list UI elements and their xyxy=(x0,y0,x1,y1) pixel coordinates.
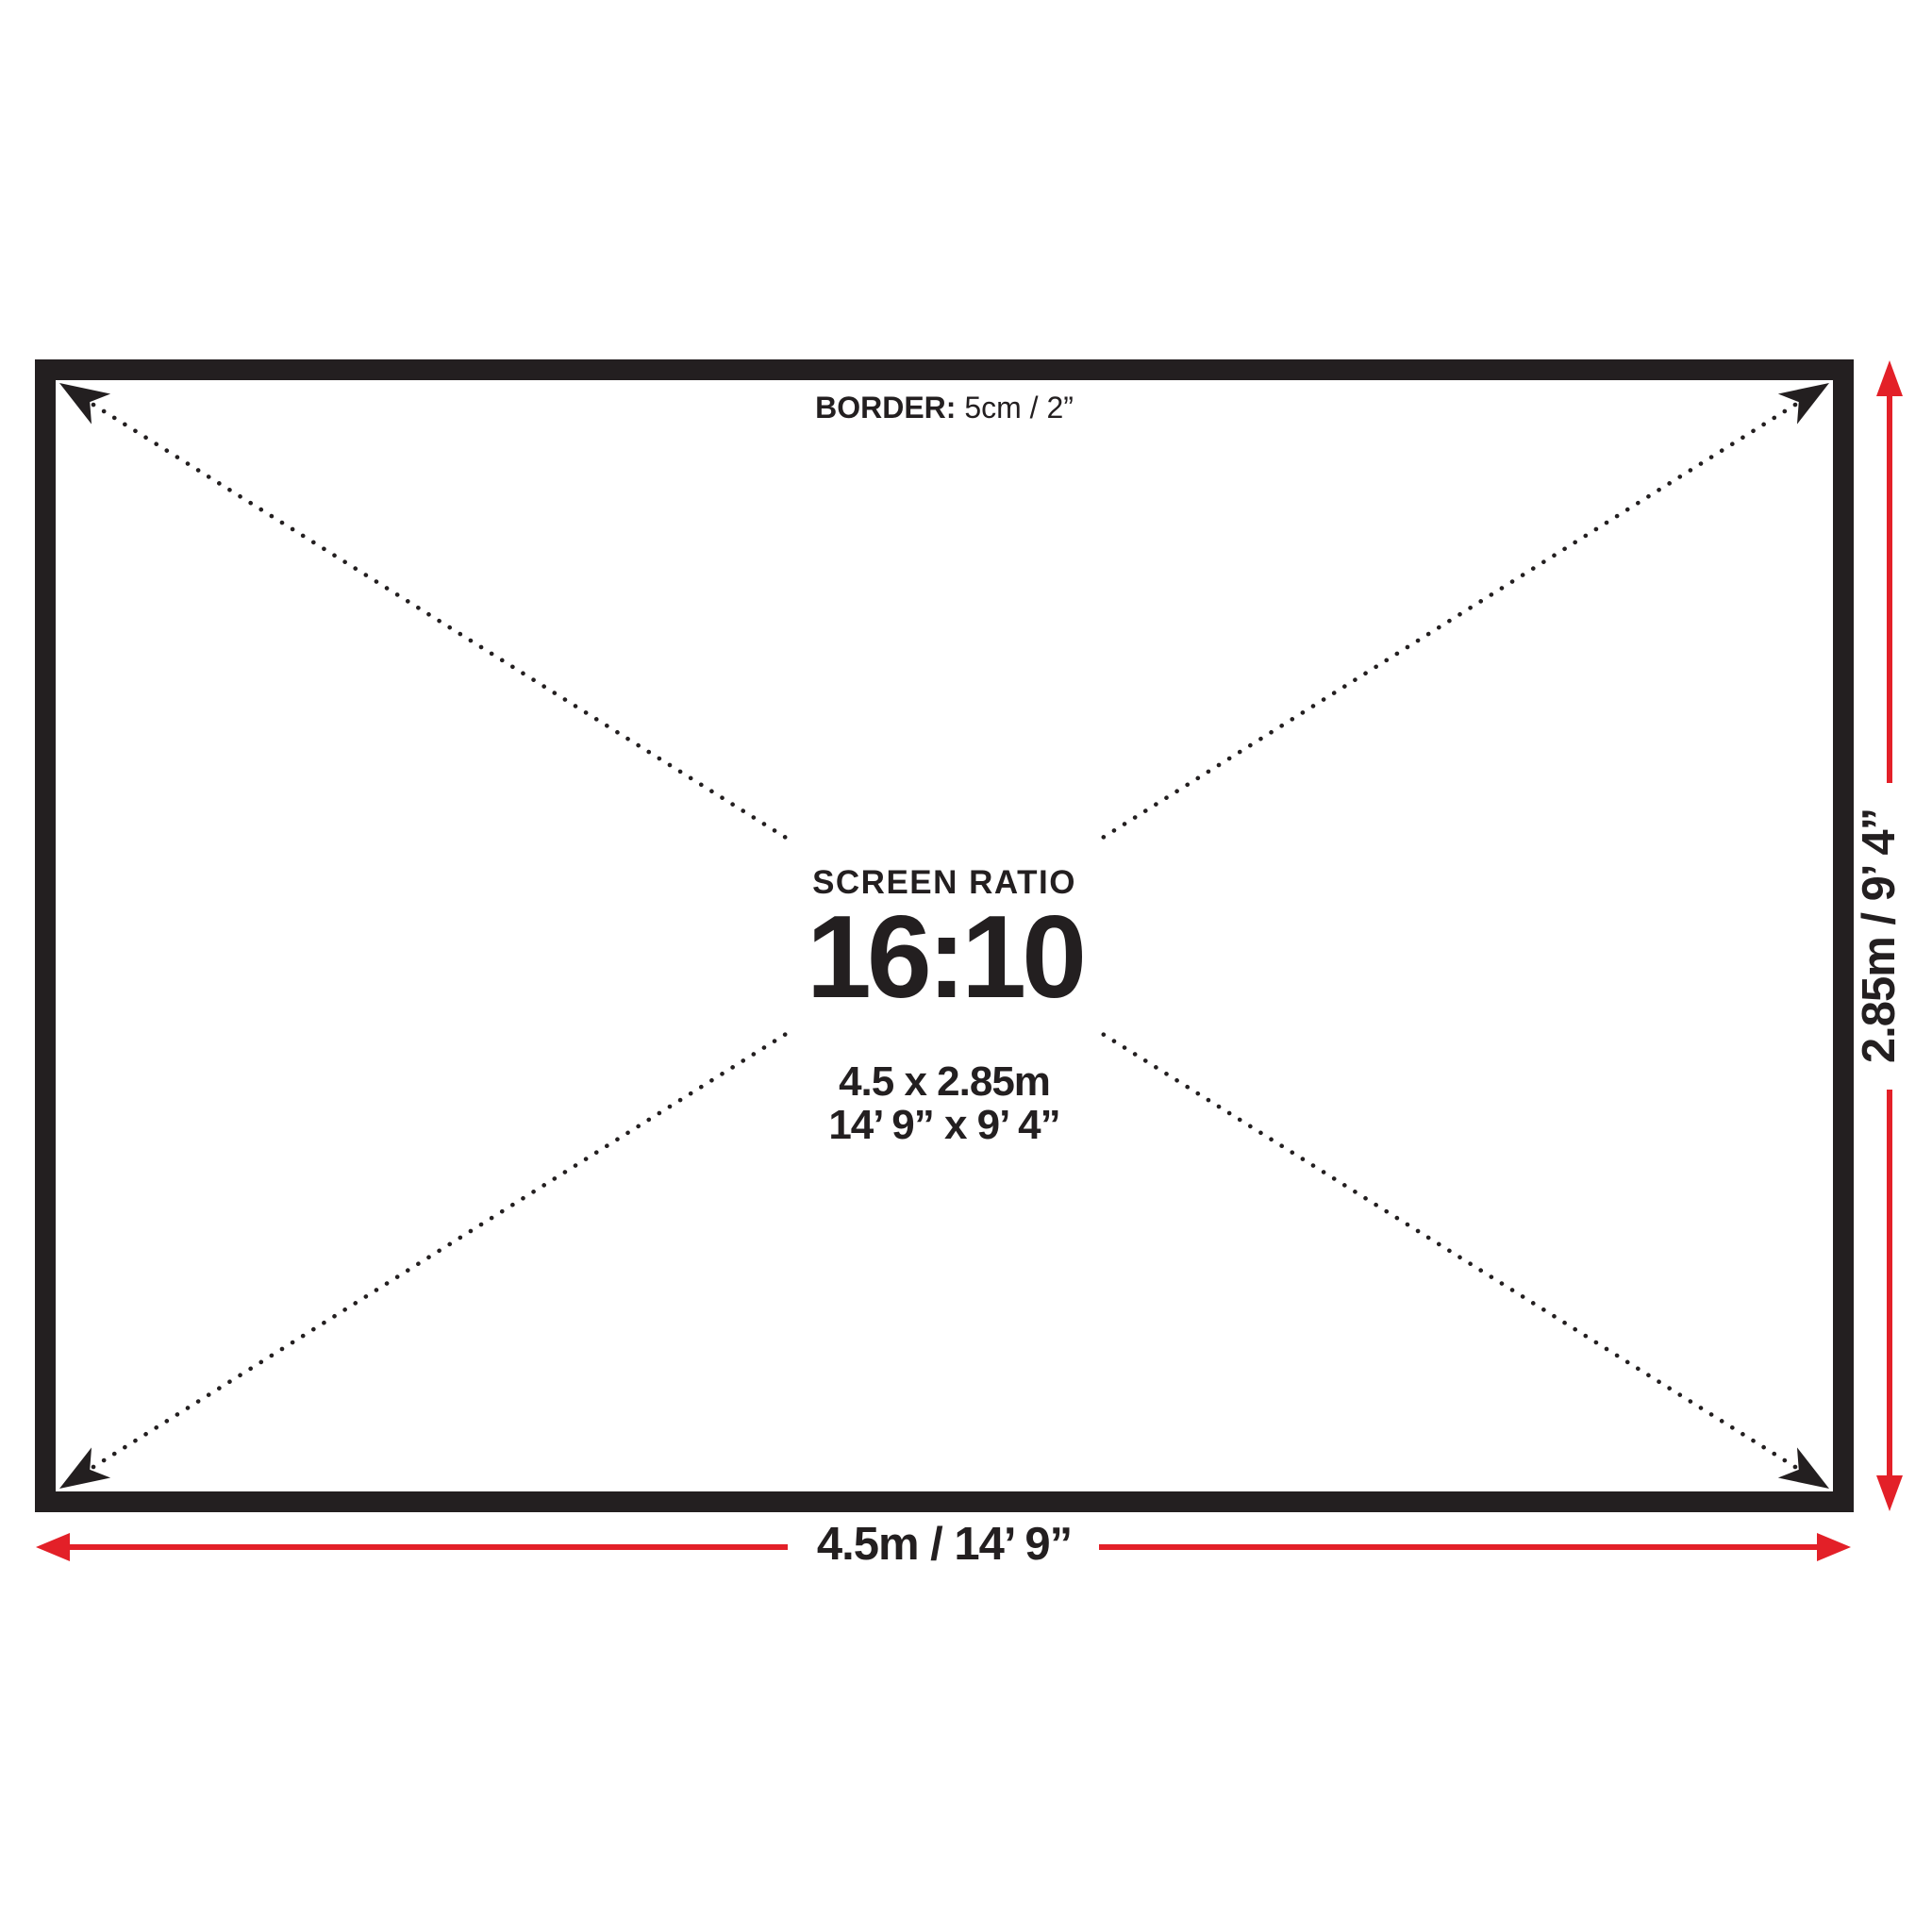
width-dimension-label: 4.5m / 14’ 9” xyxy=(567,1520,1322,1569)
diagonal-arrow-top-right-icon xyxy=(1778,368,1839,425)
screen-size-metric: 4.5 x 2.85m xyxy=(567,1060,1322,1104)
diagonal-arrow-bottom-left-icon xyxy=(50,1447,110,1504)
screen-ratio-value: 16:10 xyxy=(567,903,1322,1012)
diagonal-arrow-bottom-right-icon xyxy=(1778,1447,1839,1504)
border-note-label: BORDER: xyxy=(815,391,956,425)
width-arrow-left-icon xyxy=(36,1533,70,1561)
diagonal-arrow-top-left-icon xyxy=(50,368,110,425)
height-dimension-label: 2.85m / 9’ 4” xyxy=(1853,808,1906,1063)
height-arrow-down-icon xyxy=(1876,1475,1903,1511)
border-note-value: 5cm / 2” xyxy=(956,391,1073,425)
diagonal-line-top-left xyxy=(93,405,791,841)
diagonal-line-top-right xyxy=(1098,405,1795,841)
width-arrow-right-icon xyxy=(1817,1533,1851,1561)
screen-dimension-diagram: BORDER: 5cm / 2” SCREEN RATIO 16:10 4.5 … xyxy=(0,0,1932,1932)
height-arrow-up-icon xyxy=(1876,360,1903,396)
border-note: BORDER: 5cm / 2” xyxy=(567,390,1322,425)
screen-size-imperial: 14’ 9” x 9’ 4” xyxy=(567,1104,1322,1147)
